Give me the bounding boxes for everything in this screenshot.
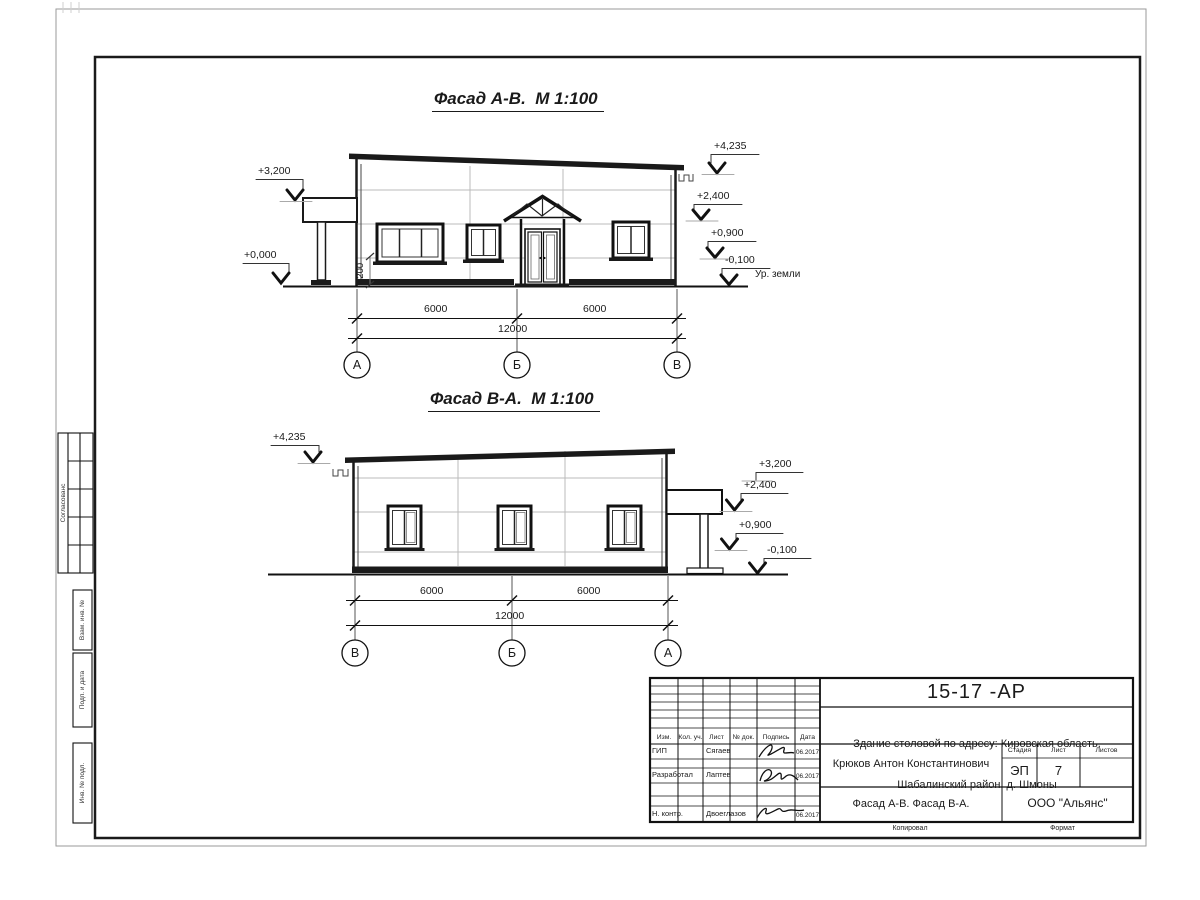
elevation-label: -0,100: [767, 545, 797, 557]
elevation-label: +3,200: [759, 459, 791, 471]
stamp-podp-data: Подп. и дата: [77, 660, 87, 720]
stamp-vzam-inv: Взам. инв. №: [77, 592, 87, 648]
facade-va-linework: [268, 449, 788, 575]
sheets-header: Листов: [1080, 747, 1133, 754]
facade-av-title: Фасад А-В. М 1:100: [432, 90, 604, 112]
dimension-label: 12000: [495, 611, 524, 623]
elevation-label: +0,900: [711, 228, 743, 240]
axis-bubble: В: [342, 640, 368, 666]
format-label: Формат: [1030, 825, 1095, 833]
dimension-label: 6000: [577, 586, 600, 598]
project-name-line2: Шабалинский район, д. Шмоны: [822, 779, 1132, 793]
col-header-sign: Подпись: [757, 734, 795, 741]
axis-bubble: Б: [499, 640, 525, 666]
elevation-label: +2,400: [744, 480, 776, 492]
row-date: 06.2017: [795, 773, 820, 780]
drawing-sheet: Фасад А-В. М 1:100 Фасад В-А. М 1:100 +3…: [0, 0, 1200, 900]
dimension-label: 6000: [420, 586, 443, 598]
sheet-number: 7: [1037, 764, 1080, 778]
facade-av-linework: [283, 154, 748, 289]
document-number: 15-17 -АР: [820, 681, 1133, 703]
stage-header: Стадия: [1002, 747, 1037, 754]
sill-height-dimension: 1200: [356, 263, 366, 284]
elevation-label: +3,200: [258, 166, 290, 178]
stage-value: ЭП: [1002, 764, 1037, 778]
axis-bubble: В: [664, 352, 690, 378]
row-name: Лаптев: [706, 771, 731, 779]
stamp-inv-podl: Инв. № подл.: [77, 751, 87, 815]
axis-bubble: А: [655, 640, 681, 666]
author-name: Крюков Антон Константинович: [822, 758, 1000, 770]
elevation-label: +4,235: [273, 432, 305, 444]
col-header-list: Лист: [703, 734, 730, 741]
facade-va-elevation-marks: [271, 446, 811, 574]
row-role: Н. контр.: [652, 810, 683, 818]
elevation-label: +2,400: [697, 191, 729, 203]
dimension-label: 6000: [424, 304, 447, 316]
stamp-agreed: Согласованс: [58, 463, 68, 543]
col-header-koluch: Кол. уч.: [678, 734, 703, 741]
company-name: ООО "Альянс": [1002, 797, 1133, 810]
dimension-label: 12000: [498, 324, 527, 336]
elevation-label: +0,000: [244, 250, 276, 262]
col-header-doc: № док.: [730, 734, 757, 741]
col-header-date: Дата: [795, 734, 820, 741]
row-date: 06.2017: [795, 812, 820, 819]
sheet-header: Лист: [1037, 747, 1080, 754]
row-name: Двоеглазов: [706, 810, 746, 818]
axis-bubble: Б: [504, 352, 530, 378]
row-role: Разработал: [652, 771, 693, 779]
row-name: Сягаев: [706, 747, 730, 755]
copied-by-label: Копировал: [870, 825, 950, 833]
axis-bubble: А: [344, 352, 370, 378]
facade-va-title: Фасад В-А. М 1:100: [428, 390, 600, 412]
row-role: ГИП: [652, 747, 667, 755]
col-header-izm: Изм.: [650, 734, 678, 741]
elevation-label: +0,900: [739, 520, 771, 532]
sheet-content-title: Фасад А-В. Фасад В-А.: [822, 798, 1000, 810]
dimension-label: 6000: [583, 304, 606, 316]
row-date: 06.2017: [795, 749, 820, 756]
elevation-label: +4,235: [714, 141, 746, 153]
elevation-label: -0,100: [725, 255, 755, 267]
ground-level-label: Ур. земли: [755, 269, 800, 280]
